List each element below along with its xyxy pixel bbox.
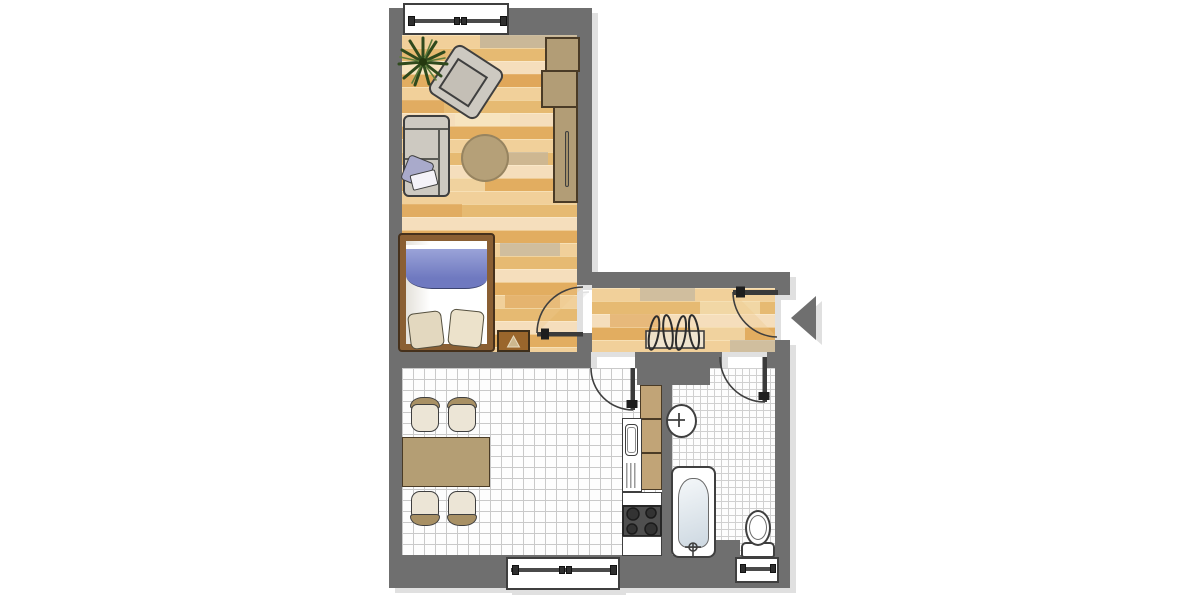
floor-plan-canvas [0,0,1200,600]
arrow-layer [0,0,1200,600]
apartment-floor-plan [0,0,1200,600]
entrance-arrow-icon [791,296,816,340]
